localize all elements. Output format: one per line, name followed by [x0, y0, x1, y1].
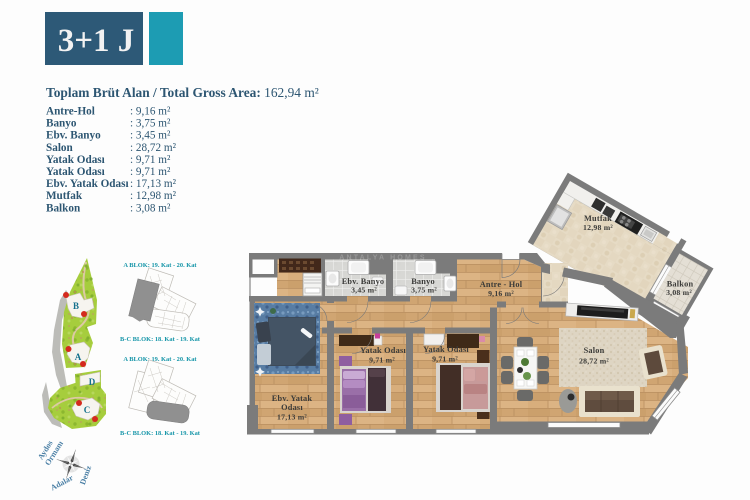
- svg-text:Yatak Odası: Yatak Odası: [46, 166, 105, 178]
- svg-text:9,71 m²: 9,71 m²: [369, 356, 395, 365]
- svg-text:Odası: Odası: [281, 403, 303, 412]
- svg-text:: 3,08 m²: : 3,08 m²: [130, 202, 171, 214]
- svg-text:B-C BLOK: 18. Kat - 19. Kat: B-C BLOK: 18. Kat - 19. Kat: [120, 336, 201, 343]
- svg-text:12,98 m²: 12,98 m²: [583, 223, 613, 232]
- svg-text:Salon: Salon: [46, 142, 74, 154]
- svg-text:Yatak Odası: Yatak Odası: [423, 345, 469, 354]
- svg-text:Yatak Odası: Yatak Odası: [46, 154, 105, 166]
- svg-text:A: A: [75, 352, 82, 362]
- svg-text:Ebv. Banyo: Ebv. Banyo: [46, 130, 101, 142]
- svg-text:Antre - Hol: Antre - Hol: [480, 280, 523, 289]
- svg-text:: 12,98 m²: : 12,98 m²: [130, 190, 177, 202]
- svg-text:: 3,75 m²: : 3,75 m²: [130, 118, 171, 130]
- svg-text:17,13 m²: 17,13 m²: [277, 413, 307, 422]
- svg-text:Ebv. Yatak: Ebv. Yatak: [272, 394, 313, 403]
- svg-text:Yatak Odası: Yatak Odası: [360, 346, 406, 355]
- svg-text:D: D: [89, 377, 96, 387]
- svg-text:3,75 m²: 3,75 m²: [411, 286, 437, 295]
- svg-text:Balkon: Balkon: [46, 202, 81, 214]
- svg-text:Salon: Salon: [584, 346, 605, 355]
- svg-text:Banyo: Banyo: [46, 118, 77, 130]
- svg-text:Ebv. Yatak Odası: Ebv. Yatak Odası: [46, 178, 129, 190]
- svg-text:3,08 m²: 3,08 m²: [666, 288, 692, 297]
- svg-text:3,45 m²: 3,45 m²: [351, 286, 377, 295]
- svg-text:Mutfak: Mutfak: [46, 190, 83, 202]
- svg-text:Toplam Brüt Alan / Total Gross: Toplam Brüt Alan / Total Gross Area: 162…: [46, 85, 319, 100]
- svg-text:28,72 m²: 28,72 m²: [579, 357, 609, 366]
- svg-text:: 28,72 m²: : 28,72 m²: [130, 142, 177, 154]
- svg-text:A BLOK: 19. Kat - 20. Kat: A BLOK: 19. Kat - 20. Kat: [123, 356, 197, 363]
- svg-text:: 9,16 m²: : 9,16 m²: [130, 106, 171, 118]
- svg-text:: 9,71 m²: : 9,71 m²: [130, 166, 171, 178]
- svg-text:Mutfak: Mutfak: [584, 214, 612, 223]
- svg-text:9,16 m²: 9,16 m²: [488, 289, 514, 298]
- svg-text:: 3,45 m²: : 3,45 m²: [130, 130, 171, 142]
- svg-text:A BLOK: 19. Kat - 20. Kat: A BLOK: 19. Kat - 20. Kat: [123, 262, 197, 269]
- svg-text:3+1 J: 3+1 J: [58, 23, 135, 59]
- svg-text:C: C: [84, 405, 91, 415]
- svg-text:: 9,71 m²: : 9,71 m²: [130, 154, 171, 166]
- svg-text:9,71 m²: 9,71 m²: [432, 355, 458, 364]
- svg-text:Antre-Hol: Antre-Hol: [46, 106, 95, 118]
- svg-text:: 17,13 m²: : 17,13 m²: [130, 178, 177, 190]
- svg-text:B: B: [73, 301, 79, 311]
- svg-text:B-C BLOK: 18. Kat - 19. Kat: B-C BLOK: 18. Kat - 19. Kat: [120, 430, 201, 437]
